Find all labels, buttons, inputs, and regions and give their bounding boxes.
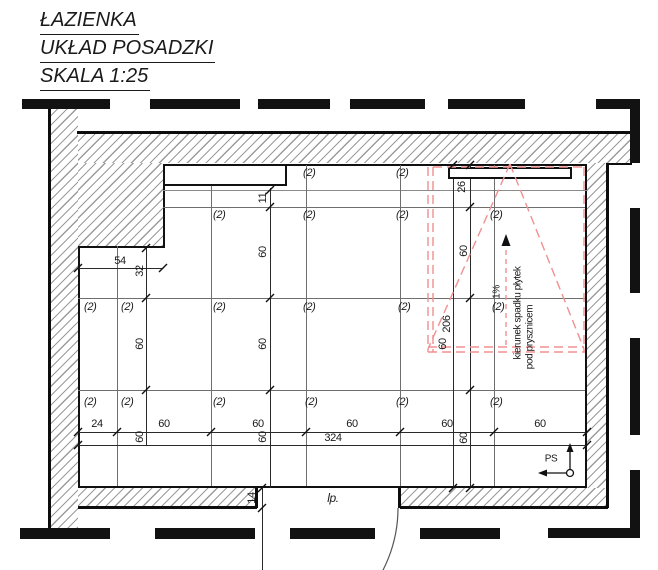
dim-label: 60	[134, 338, 146, 349]
dim-label: 60	[458, 245, 470, 256]
dim-label-total: 324	[324, 432, 341, 444]
tile-type-label: (2)	[490, 396, 503, 408]
door-threshold-label: lp.	[327, 491, 338, 505]
dim-label: 60	[534, 418, 545, 430]
tile-type-label: (2)	[396, 396, 409, 408]
tile-type-label: (2)	[213, 301, 226, 313]
dim-label: 24	[91, 418, 102, 430]
dim-label-room-depth: 206	[441, 315, 453, 332]
dim-label: 60	[458, 432, 470, 443]
start-point-label: PS	[545, 454, 558, 465]
plan-symbol-overlay	[0, 0, 658, 570]
tile-type-label: (2)	[396, 209, 409, 221]
tile-type-label: (2)	[305, 396, 318, 408]
dim-label: 60	[257, 338, 269, 349]
dim-label: 60	[158, 418, 169, 430]
tile-type-label: (2)	[490, 209, 503, 221]
dim-label: 60	[441, 418, 452, 430]
tile-type-label: (2)	[303, 209, 316, 221]
dim-label: 60	[134, 431, 146, 442]
dim-label-alcove: 54	[114, 255, 125, 267]
dim-label: 60	[257, 246, 269, 257]
tile-type-label: (2)	[303, 167, 316, 179]
dim-label: 60	[437, 338, 449, 349]
dim-label: 60	[257, 431, 269, 442]
floor-plan-drawing: ŁAZIENKA UKŁAD POSADZKI SKALA 1:25	[0, 0, 658, 570]
dim-label: 32	[134, 265, 146, 276]
door-swing-arc	[262, 508, 398, 570]
dim-label: 60	[346, 418, 357, 430]
dim-label: 11	[257, 193, 269, 204]
tile-type-label: (2)	[84, 396, 97, 408]
tile-type-label: (2)	[121, 301, 134, 313]
tile-type-label: (2)	[84, 301, 97, 313]
slope-direction-arrow	[502, 234, 511, 246]
tile-type-label: (2)	[213, 209, 226, 221]
dim-label-wall-thickness: 14	[246, 492, 258, 503]
slope-note-line2: pod prysznicem	[525, 305, 536, 369]
dim-label: 26	[456, 181, 468, 192]
tile-type-label: (2)	[398, 301, 411, 313]
dim-label: 60	[252, 418, 263, 430]
slope-note-line1: kierunek spadku płytek	[513, 267, 524, 360]
tile-type-label: (2)	[213, 396, 226, 408]
tile-type-label: (2)	[492, 301, 505, 313]
tile-type-label: (2)	[396, 167, 409, 179]
tile-type-label: (2)	[121, 396, 134, 408]
slope-percent-label: 1%	[492, 285, 503, 299]
tile-type-label: (2)	[303, 301, 316, 313]
